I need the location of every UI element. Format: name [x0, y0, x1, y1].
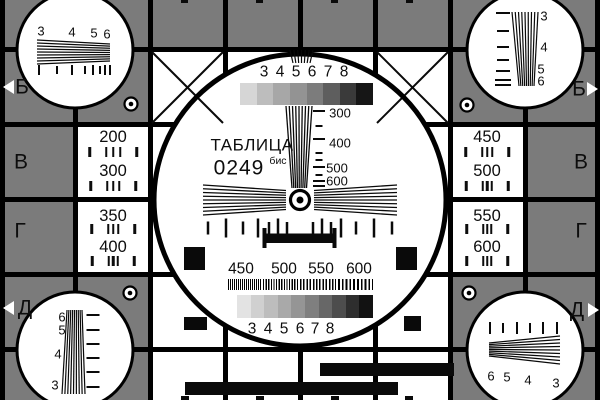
corner-circle-bottom-left: [17, 292, 133, 400]
row-marker-arrow-right-d-icon: [588, 303, 599, 317]
freq-burst-ticks: [465, 224, 509, 234]
reference-bar-lower: [185, 382, 398, 395]
gray-step-label: 6: [296, 321, 305, 337]
wedge-scale-label: 400: [329, 137, 351, 150]
burst-label: 550: [308, 261, 334, 277]
corner-wedge-label: 6: [103, 28, 110, 41]
corner-wedge-label: 3: [552, 377, 559, 390]
row-letter-right-g: Г: [575, 221, 586, 242]
freq-value: 500: [473, 163, 501, 180]
corner-wedge-label: 4: [68, 26, 75, 39]
freq-value: 400: [99, 239, 127, 256]
gray-step-label: 3: [248, 321, 257, 337]
black-square-right: [404, 316, 421, 331]
gray-step-label: 8: [340, 64, 349, 80]
card-code: 0249: [214, 158, 265, 179]
row-letter-left-d: Д: [18, 298, 32, 319]
freq-burst-ticks: [465, 181, 510, 191]
freq-value: 200: [99, 129, 127, 146]
gray-step-label: 7: [311, 321, 320, 337]
test-pattern-overlay: [0, 0, 600, 400]
gray-step-label: 5: [280, 321, 289, 337]
row-letter-left-v: В: [14, 152, 28, 173]
freq-burst-ticks: [91, 256, 136, 266]
freq-burst-ticks: [88, 147, 138, 157]
corner-wedge-label: 3: [51, 379, 58, 392]
corner-wedge-label: 3: [540, 10, 547, 23]
gray-step-label: 3: [260, 64, 269, 80]
row-letter-left-b: Б: [15, 77, 29, 98]
gray-step-label: 4: [264, 321, 273, 337]
reference-bar-upper: [320, 363, 454, 376]
burst-label: 500: [271, 261, 297, 277]
freq-value: 350: [99, 208, 127, 225]
gray-step-label: 5: [292, 64, 301, 80]
grayscale-bar-bottom: [237, 295, 373, 318]
bullseye-marker-icon: [124, 287, 137, 300]
gray-step-label: 4: [276, 64, 285, 80]
phase-block-right: [396, 247, 417, 270]
card-code-suffix: бис: [269, 156, 286, 167]
burst-grating-550: [300, 279, 336, 290]
corner-wedge-label: 4: [524, 374, 531, 387]
tv-test-card: ТАБЛИЦА 0249 бис 3 4 5 6 7 8 3 4 5 6 7 8…: [0, 0, 600, 400]
wedge-scale-label: 300: [329, 107, 351, 120]
corner-circle-top-left: [17, 0, 133, 108]
grayscale-bar-top: [240, 83, 373, 105]
burst-grating-450: [228, 279, 261, 290]
bullseye-center-icon: [291, 191, 310, 210]
corner-wedge-label: 4: [54, 348, 61, 361]
freq-value: 550: [473, 208, 501, 225]
bullseye-marker-icon: [461, 99, 474, 112]
gray-step-label: 6: [308, 64, 317, 80]
card-title: ТАБЛИЦА: [210, 137, 293, 154]
row-letter-right-b: Б: [572, 79, 586, 100]
row-letter-left-g: Г: [14, 221, 25, 242]
wedge-scale-label: 600: [326, 175, 348, 188]
corner-wedge-label: 6: [487, 370, 494, 383]
bullseye-marker-icon: [463, 287, 476, 300]
gray-step-label: 8: [326, 321, 335, 337]
corner-wedge-label: 5: [58, 324, 65, 337]
burst-label: 600: [346, 261, 372, 277]
freq-burst-ticks: [464, 147, 510, 157]
corner-wedge-label: 5: [503, 371, 510, 384]
phase-block-left: [184, 247, 205, 270]
row-marker-arrow-right-b-icon: [587, 82, 598, 96]
freq-value: 600: [473, 239, 501, 256]
burst-grating-500: [263, 279, 298, 290]
freq-burst-ticks: [89, 181, 137, 191]
row-marker-arrow-left-d-icon: [3, 301, 14, 315]
gray-step-label: 7: [324, 64, 333, 80]
bullseye-marker-icon: [125, 98, 138, 111]
burst-label: 450: [228, 261, 254, 277]
corner-wedge-label: 5: [90, 27, 97, 40]
row-marker-arrow-left-b-icon: [3, 80, 14, 94]
corner-wedge-label: 4: [540, 41, 547, 54]
row-letter-right-d: Д: [570, 300, 584, 321]
corner-wedge-label: 6: [537, 75, 544, 88]
freq-value: 450: [473, 129, 501, 146]
burst-grating-600: [338, 279, 373, 290]
row-letter-right-v: В: [574, 152, 588, 173]
freq-burst-ticks: [465, 256, 509, 266]
black-square-left: [184, 317, 207, 330]
freq-value: 300: [99, 163, 127, 180]
freq-burst-ticks: [90, 224, 136, 234]
corner-wedge-label: 3: [37, 25, 44, 38]
